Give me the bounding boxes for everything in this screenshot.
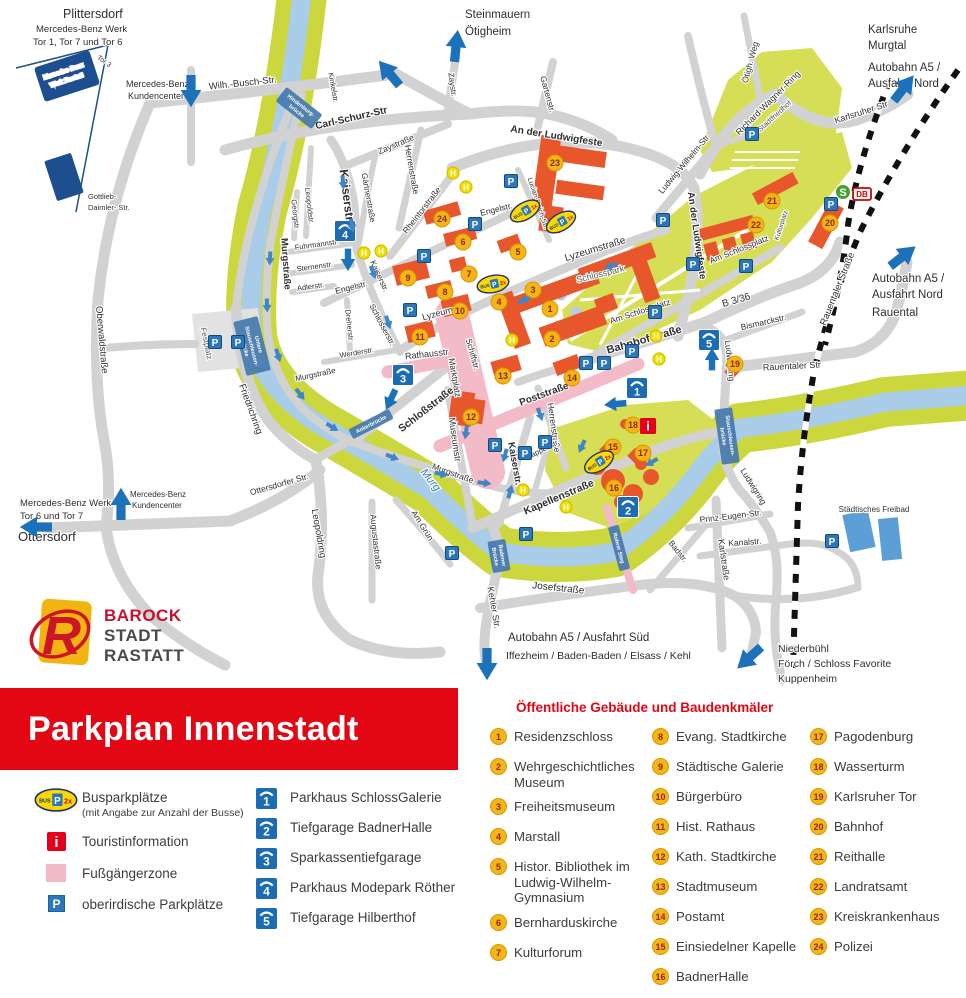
svg-text:3: 3 <box>496 802 501 812</box>
svg-text:20: 20 <box>813 822 823 832</box>
garage-legend-label: Parkhaus Modepark Röther <box>290 878 455 896</box>
poi-number-icon: 14 <box>652 908 669 925</box>
poi-legend-label: Evang. Stadtkirche <box>676 728 787 745</box>
svg-text:16: 16 <box>655 972 665 982</box>
city-map: Wilh.-Busch-Str.Kinkelstr.Carl-Schurz-St… <box>0 0 966 690</box>
map-label: Dreherstr. <box>343 309 355 343</box>
map-label: Murgtal <box>868 40 906 52</box>
poi-legend-item: 2 Wehrgeschichtliches Museum <box>490 758 652 790</box>
map-label: Georgstr. <box>289 199 301 231</box>
svg-text:5: 5 <box>706 339 712 351</box>
legend-item: i Touristinformation <box>30 832 245 851</box>
poi-legend-label: Pagodenburg <box>834 728 913 745</box>
poi-marker: 12 <box>463 409 479 425</box>
legend-item-label: oberirdische Parkplätze <box>82 895 223 913</box>
pedestrian-zone-icon <box>46 864 66 882</box>
poi-legend-item: 14 Postamt <box>652 908 810 930</box>
svg-text:P: P <box>542 438 549 449</box>
map-label: Mercedes-Benz <box>130 490 186 499</box>
legend-item-label: Busparkplätze(mit Angabe zur Anzahl der … <box>82 788 244 819</box>
poi-marker: 2 <box>544 331 560 347</box>
map-label: Kundencenter <box>132 501 182 510</box>
poi-number-icon: 6 <box>490 914 507 931</box>
map-label: Rauental <box>872 307 918 319</box>
poi-legend-item: 9 Städtische Galerie <box>652 758 810 780</box>
poi-number-icon: 2 <box>490 758 507 775</box>
poi-marker: 20 <box>822 215 838 231</box>
poi-legend-label: Hist. Rathaus <box>676 818 755 835</box>
poi-list-column-1: 1 Residenzschloss 2 Wehrgeschichtliches … <box>490 728 652 974</box>
poi-legend-label: Stadtmuseum <box>676 878 757 895</box>
svg-text:BUS: BUS <box>39 799 51 805</box>
logo-line-2: STADT <box>104 626 184 646</box>
poi-number-icon: 4 <box>490 828 507 845</box>
legend-symbols: BUSP2x Busparkplätze(mit Angabe zur Anza… <box>30 788 245 925</box>
map-label: Karlsruhe <box>868 24 917 36</box>
poi-legend-label: Bahnhof <box>834 818 883 835</box>
map-label: Autobahn A5 / Ausfahrt Süd <box>508 632 649 644</box>
svg-text:12: 12 <box>466 412 476 422</box>
poi-number-icon: 19 <box>810 788 827 805</box>
svg-text:P: P <box>407 306 414 317</box>
map-label: Tor 1, Tor 7 und Tor 6 <box>33 37 122 48</box>
map-canvas: Wilh.-Busch-Str.Kinkelstr.Carl-Schurz-St… <box>0 0 966 690</box>
parking-marker: P <box>626 345 639 358</box>
poi-marker: 24 <box>434 211 450 227</box>
svg-text:P: P <box>749 130 756 141</box>
bus-stop-marker: H <box>560 501 572 513</box>
svg-text:24: 24 <box>813 942 823 952</box>
parking-marker: P <box>469 218 482 231</box>
parking-marker: P <box>418 250 431 263</box>
poi-number-icon: 17 <box>810 728 827 745</box>
svg-text:P: P <box>601 359 608 370</box>
poi-marker: 10 <box>452 303 468 319</box>
parking-marker: P <box>489 439 502 452</box>
svg-text:H: H <box>656 355 662 364</box>
poi-number-icon: 18 <box>810 758 827 775</box>
svg-text:2: 2 <box>496 762 501 772</box>
poi-marker: 21 <box>764 193 780 209</box>
svg-text:H: H <box>509 336 515 345</box>
svg-text:DB: DB <box>856 190 868 199</box>
bus-stop-marker: H <box>517 484 529 496</box>
poi-marker: 1 <box>542 301 558 317</box>
svg-text:21: 21 <box>813 852 823 862</box>
poi-legend-label: Histor. Bibliothek im Ludwig-Wilhelm-Gym… <box>514 858 652 906</box>
svg-text:H: H <box>361 249 367 258</box>
svg-text:18: 18 <box>628 420 638 430</box>
map-label: Adlerstr. <box>296 280 325 293</box>
poi-marker: 4 <box>491 294 507 310</box>
svg-text:18: 18 <box>813 762 823 772</box>
svg-text:P: P <box>828 200 835 211</box>
svg-text:H: H <box>563 503 569 512</box>
garage-legend-label: Sparkassentiefgarage <box>290 848 421 866</box>
poi-legend-item: 18 Wasserturm <box>810 758 964 780</box>
svg-text:S: S <box>839 187 846 199</box>
poi-number-icon: 12 <box>652 848 669 865</box>
db-icon: DB <box>853 188 871 200</box>
svg-text:19: 19 <box>813 792 823 802</box>
map-label: Steinmauern <box>465 9 530 21</box>
svg-text:11: 11 <box>656 822 666 832</box>
poi-number-icon: 5 <box>490 858 507 875</box>
garage-legend-label: Tiefgarage BadnerHalle <box>290 818 432 836</box>
logo-line-1: BAROCK <box>104 606 184 626</box>
svg-text:P: P <box>629 347 636 358</box>
svg-text:5: 5 <box>496 862 501 872</box>
poi-marker: 5 <box>510 244 526 260</box>
svg-text:1: 1 <box>496 732 501 742</box>
poi-legend-item: 17 Pagodenburg <box>810 728 964 750</box>
poi-legend-label: Reithalle <box>834 848 885 865</box>
map-label: Murgstraße <box>278 238 293 290</box>
garage-marker: 1 <box>627 378 648 399</box>
legend-item: BUSP2x Busparkplätze(mit Angabe zur Anza… <box>30 788 245 819</box>
svg-text:H: H <box>450 169 456 178</box>
svg-text:P: P <box>523 530 530 541</box>
parking-marker: P <box>687 258 700 271</box>
svg-text:4: 4 <box>263 885 270 899</box>
poi-legend-label: BadnerHalle <box>676 968 749 985</box>
poi-legend-item: 22 Landratsamt <box>810 878 964 900</box>
logo-line-3: RASTATT <box>104 646 184 666</box>
svg-text:1: 1 <box>263 795 270 809</box>
parking-marker: P <box>649 306 662 319</box>
parking-marker: P <box>404 304 417 317</box>
svg-text:P: P <box>472 220 479 231</box>
svg-text:10: 10 <box>655 792 665 802</box>
poi-number-icon: 20 <box>810 818 827 835</box>
svg-text:2: 2 <box>549 334 554 344</box>
bus-stop-marker: H <box>506 334 518 346</box>
poi-list-column-3: 17 Pagodenburg 18 Wasserturm 19 Karlsruh… <box>810 728 964 968</box>
map-label: Kuppenheim <box>778 673 837 685</box>
poi-legend-item: 15 Einsiedelner Kapelle <box>652 938 810 960</box>
poi-legend-item: 8 Evang. Stadtkirche <box>652 728 810 750</box>
svg-text:P: P <box>508 177 515 188</box>
poi-legend-item: 12 Kath. Stadtkirche <box>652 848 810 870</box>
poi-legend-label: Wehrgeschichtliches Museum <box>514 758 652 790</box>
svg-text:9: 9 <box>658 762 663 772</box>
legend-item-label: Fußgängerzone <box>82 864 177 882</box>
garage-icon: 1 <box>256 788 277 809</box>
svg-text:P: P <box>690 260 697 271</box>
parking-marker: P <box>826 535 839 548</box>
map-label: Plittersdorf <box>63 7 123 21</box>
parking-marker: P <box>520 528 533 541</box>
svg-text:13: 13 <box>498 371 508 381</box>
svg-text:8: 8 <box>658 732 663 742</box>
garage-marker: 2 <box>618 497 639 518</box>
poi-legend-label: Marstall <box>514 828 560 845</box>
poi-marker: 7 <box>461 266 477 282</box>
svg-text:20: 20 <box>825 218 835 228</box>
svg-text:12: 12 <box>655 852 665 862</box>
map-label: Städtisches Freibad <box>839 505 910 514</box>
svg-text:23: 23 <box>813 912 823 922</box>
legend-garages: 1 Parkhaus SchlossGalerie 2 Tiefgarage B… <box>256 788 481 938</box>
parking-marker: P <box>446 547 459 560</box>
poi-legend-item: 21 Reithalle <box>810 848 964 870</box>
svg-text:3: 3 <box>263 855 270 869</box>
map-label: Tor 6 und Tor 7 <box>20 511 83 522</box>
svg-text:17: 17 <box>813 732 823 742</box>
bus-stop-marker: H <box>460 181 472 193</box>
poi-marker: 17 <box>635 445 651 461</box>
poi-legend-item: 1 Residenzschloss <box>490 728 652 750</box>
poi-marker: 11 <box>412 329 428 345</box>
map-label: Autobahn A5 / <box>868 62 941 74</box>
svg-text:P: P <box>743 262 750 273</box>
page-title: Parkplan Innenstadt <box>28 710 359 749</box>
poi-legend-label: Kulturforum <box>514 944 582 961</box>
poi-marker: 3 <box>525 282 541 298</box>
poi-legend-item: 16 BadnerHalle <box>652 968 810 990</box>
freibad-buildings <box>842 510 902 561</box>
parking-marker: P <box>519 447 532 460</box>
map-label: Förch / Schloss Favorite <box>778 658 891 670</box>
poi-marker: 6 <box>455 234 471 250</box>
poi-marker: 23 <box>547 155 563 171</box>
svg-text:7: 7 <box>496 948 501 958</box>
poi-marker: 14 <box>564 370 580 386</box>
poi-legend-item: 4 Marstall <box>490 828 652 850</box>
bus-stop-marker: H <box>447 167 459 179</box>
svg-text:i: i <box>54 834 58 851</box>
poi-legend-label: Einsiedelner Kapelle <box>676 938 796 955</box>
map-label: Autobahn A5 / <box>872 273 945 285</box>
garage-marker: 3 <box>393 365 414 386</box>
map-label: Iffezheim / Baden-Baden / Elsass / Kehl <box>506 650 691 662</box>
poi-legend-item: 23 Kreiskrankenhaus <box>810 908 964 930</box>
parking-marker: P <box>580 357 593 370</box>
svg-text:5: 5 <box>263 915 270 929</box>
svg-text:H: H <box>520 486 526 495</box>
poi-marker: 16 <box>606 480 622 496</box>
svg-text:1: 1 <box>547 304 552 314</box>
svg-text:11: 11 <box>415 332 425 342</box>
poi-legend-label: Kreiskrankenhaus <box>834 908 940 925</box>
poi-legend-label: Städtische Galerie <box>676 758 784 775</box>
map-label: Niederbühl <box>778 643 829 655</box>
poi-number-icon: 3 <box>490 798 507 815</box>
poi-number-icon: 9 <box>652 758 669 775</box>
svg-text:24: 24 <box>437 214 447 224</box>
poi-list-header: Öffentliche Gebäude und Baudenkmäler <box>516 700 773 715</box>
legend-item-note: (mit Angabe zur Anzahl der Busse) <box>82 807 244 819</box>
poi-legend-label: Landratsamt <box>834 878 907 895</box>
poi-legend-item: 11 Hist. Rathaus <box>652 818 810 840</box>
svg-text:22: 22 <box>813 882 823 892</box>
map-label: Mercedes-Benz <box>126 79 190 89</box>
poi-marker: 18 <box>625 417 641 433</box>
poi-legend-item: 13 Stadtmuseum <box>652 878 810 900</box>
poi-legend-item: 3 Freiheitsmuseum <box>490 798 652 820</box>
svg-text:P: P <box>660 216 667 227</box>
svg-text:14: 14 <box>655 912 665 922</box>
poi-legend-item: 20 Bahnhof <box>810 818 964 840</box>
bus-stop-marker: H <box>375 245 387 257</box>
poi-number-icon: 11 <box>652 818 669 835</box>
poi-marker: 13 <box>495 368 511 384</box>
poi-legend-item: 6 Bernharduskirche <box>490 914 652 936</box>
poi-number-icon: 13 <box>652 878 669 895</box>
svg-text:P: P <box>492 441 499 452</box>
bus-stop-marker: H <box>650 330 662 342</box>
legend-item-label: Touristinformation <box>82 832 189 850</box>
svg-text:22: 22 <box>751 220 761 230</box>
svg-text:i: i <box>646 419 650 434</box>
svg-text:4: 4 <box>496 832 501 842</box>
svg-text:7: 7 <box>466 269 471 279</box>
svg-text:5: 5 <box>515 247 520 257</box>
parking-marker: P <box>740 260 753 273</box>
garage-access-arrow-icon <box>705 348 719 370</box>
poi-number-icon: 23 <box>810 908 827 925</box>
svg-text:19: 19 <box>730 359 740 369</box>
svg-text:H: H <box>653 332 659 341</box>
poi-marker: 8 <box>437 284 453 300</box>
poi-legend-label: Polizei <box>834 938 873 955</box>
svg-text:3: 3 <box>400 374 406 386</box>
poi-number-icon: 22 <box>810 878 827 895</box>
map-label: Ötigheim <box>465 26 511 38</box>
poi-legend-label: Postamt <box>676 908 724 925</box>
parking-marker: P <box>539 436 552 449</box>
svg-text:3: 3 <box>530 285 535 295</box>
svg-text:9: 9 <box>405 273 410 283</box>
poi-list-column-2: 8 Evang. Stadtkirche 9 Städtische Galeri… <box>652 728 810 998</box>
svg-text:4: 4 <box>496 297 501 307</box>
poi-number-icon: 24 <box>810 938 827 955</box>
rastatt-r-emblem-icon: R <box>26 596 92 670</box>
garage-legend-item: 1 Parkhaus SchlossGalerie <box>256 788 481 809</box>
parking-marker: P <box>657 214 670 227</box>
poi-legend-label: Kath. Stadtkirche <box>676 848 776 865</box>
poi-legend-label: Karlsruher Tor <box>834 788 917 805</box>
svg-text:14: 14 <box>567 373 577 383</box>
svg-text:6: 6 <box>496 918 501 928</box>
poi-legend-item: 19 Karlsruher Tor <box>810 788 964 810</box>
poi-number-icon: 7 <box>490 944 507 961</box>
svg-text:13: 13 <box>655 882 665 892</box>
garage-legend-label: Parkhaus SchlossGalerie <box>290 788 442 806</box>
map-label: Mercedes-Benz Werk <box>20 498 111 509</box>
svg-text:4: 4 <box>342 230 349 242</box>
poi-number-icon: 1 <box>490 728 507 745</box>
poi-number-icon: 16 <box>652 968 669 985</box>
svg-text:H: H <box>378 247 384 256</box>
svg-text:1: 1 <box>634 387 640 399</box>
svg-text:15: 15 <box>655 942 665 952</box>
map-label: Gottlieb- <box>88 192 117 201</box>
poi-number-icon: 21 <box>810 848 827 865</box>
parking-icon: P <box>48 895 65 912</box>
parking-marker: P <box>232 336 245 349</box>
svg-text:P: P <box>235 338 242 349</box>
map-label: Daimler- Str. <box>88 203 130 212</box>
garage-legend-item: 4 Parkhaus Modepark Röther <box>256 878 481 899</box>
tourist-info-marker: i <box>640 418 656 434</box>
garage-icon: 5 <box>256 908 277 929</box>
title-banner: Parkplan Innenstadt <box>0 688 458 770</box>
map-label: Murgstraße <box>295 366 337 383</box>
svg-text:2: 2 <box>263 825 270 839</box>
svg-text:23: 23 <box>550 158 560 168</box>
sbahn-icon: S <box>836 185 851 200</box>
parking-marker: P <box>746 128 759 141</box>
poi-number-icon: 8 <box>652 728 669 745</box>
poi-legend-item: 5 Histor. Bibliothek im Ludwig-Wilhelm-G… <box>490 858 652 906</box>
map-label: Kaiserstr. <box>337 169 358 225</box>
map-label: Kundencenter <box>128 91 184 101</box>
map-label: Schloßstraße <box>396 384 456 435</box>
poi-number-icon: 10 <box>652 788 669 805</box>
garage-legend-item: 3 Sparkassentiefgarage <box>256 848 481 869</box>
svg-text:P: P <box>54 796 61 807</box>
svg-text:10: 10 <box>455 306 465 316</box>
svg-text:P: P <box>421 252 428 263</box>
svg-text:P: P <box>522 449 529 460</box>
svg-text:17: 17 <box>638 448 648 458</box>
garage-icon: 3 <box>256 848 277 869</box>
garage-icon: 4 <box>256 878 277 899</box>
svg-text:P: P <box>52 897 60 911</box>
parking-marker: P <box>209 336 222 349</box>
svg-text:21: 21 <box>767 196 777 206</box>
poi-marker: 9 <box>400 270 416 286</box>
tourist-info-icon: i <box>47 832 66 851</box>
poi-legend-label: Bernharduskirche <box>514 914 617 931</box>
svg-text:P: P <box>583 359 590 370</box>
bus-stop-marker: H <box>358 247 370 259</box>
svg-text:P: P <box>212 338 219 349</box>
poi-legend-item: 24 Polizei <box>810 938 964 960</box>
parking-marker: P <box>598 357 611 370</box>
map-label: Ausfahrt Nord <box>872 289 943 301</box>
svg-text:2x: 2x <box>64 797 72 805</box>
poi-legend-label: Bürgerbüro <box>676 788 742 805</box>
poi-legend-item: 7 Kulturforum <box>490 944 652 966</box>
poi-marker: 22 <box>748 217 764 233</box>
poi-marker: 19 <box>727 356 743 372</box>
poi-legend-item: 10 Bürgerbüro <box>652 788 810 810</box>
svg-text:6: 6 <box>460 237 465 247</box>
garage-legend-item: 5 Tiefgarage Hilberthof <box>256 908 481 929</box>
svg-text:P: P <box>652 308 659 319</box>
svg-text:P: P <box>449 549 456 560</box>
garage-legend-label: Tiefgarage Hilberthof <box>290 908 416 926</box>
poi-number-icon: 15 <box>652 938 669 955</box>
emblem-letter: R <box>42 606 81 666</box>
parking-marker: P <box>505 175 518 188</box>
svg-text:16: 16 <box>609 483 619 493</box>
svg-text:H: H <box>463 183 469 192</box>
barock-stadt-rastatt-logo: R BAROCK STADT RASTATT <box>26 596 184 670</box>
bus-stop-marker: H <box>653 353 665 365</box>
svg-text:8: 8 <box>442 287 447 297</box>
poi-legend-label: Wasserturm <box>834 758 905 775</box>
poi-legend-label: Residenzschloss <box>514 728 613 745</box>
legend-item: P oberirdische Parkplätze <box>30 895 245 913</box>
bus-parking-icon: BUSP2x <box>33 788 79 812</box>
garage-marker: 5 <box>699 330 720 351</box>
svg-text:P: P <box>829 537 836 548</box>
map-label: Mercedes-Benz Werk <box>36 24 127 35</box>
parking-marker: P <box>825 198 838 211</box>
